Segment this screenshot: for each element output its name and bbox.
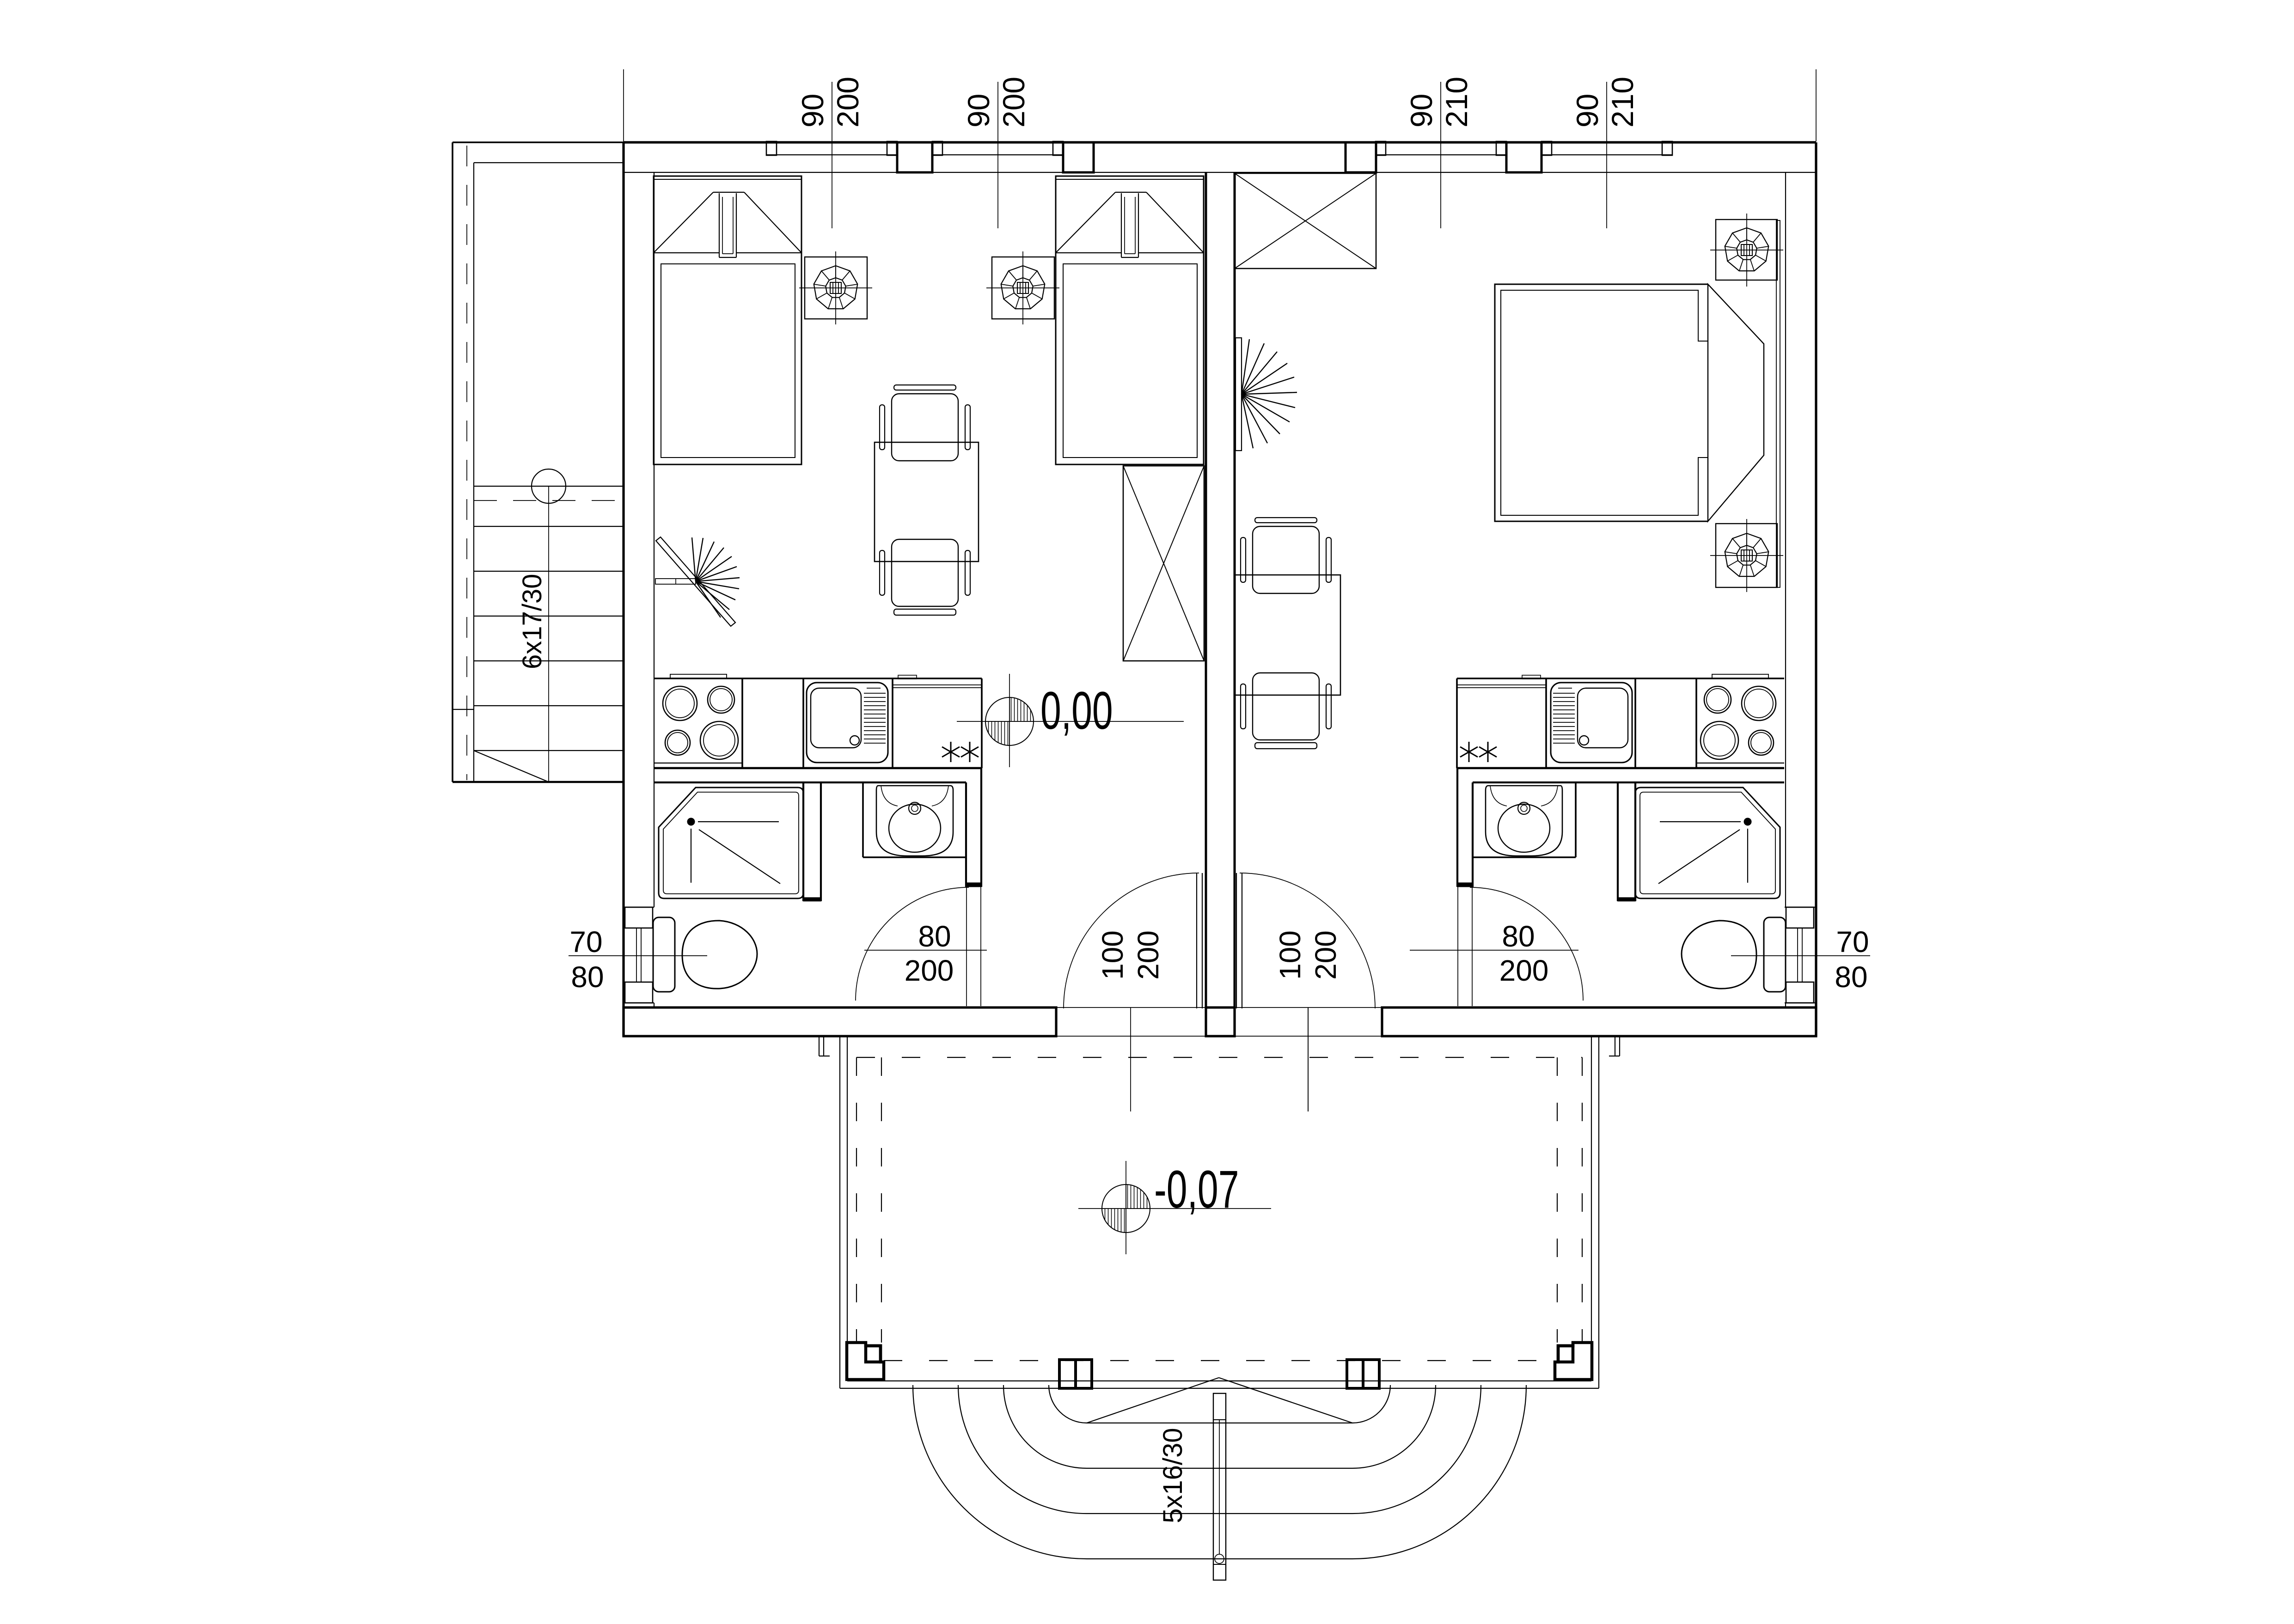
svg-text:200: 200	[1132, 930, 1165, 980]
svg-text:100: 100	[1096, 930, 1129, 980]
svg-text:200: 200	[1309, 930, 1342, 980]
svg-text:90: 90	[961, 94, 996, 128]
svg-text:90: 90	[1404, 94, 1438, 128]
svg-text:-0,07: -0,07	[1154, 1160, 1239, 1220]
svg-text:6x17/30: 6x17/30	[517, 574, 547, 669]
svg-text:80: 80	[1502, 920, 1535, 953]
svg-text:210: 210	[1439, 77, 1474, 128]
svg-text:90: 90	[1570, 94, 1604, 128]
svg-text:5x16/30: 5x16/30	[1158, 1428, 1188, 1523]
svg-text:90: 90	[795, 94, 830, 128]
svg-text:70: 70	[569, 925, 602, 959]
svg-text:210: 210	[1605, 77, 1639, 128]
svg-text:200: 200	[997, 77, 1031, 128]
svg-text:200: 200	[1499, 954, 1549, 987]
svg-text:200: 200	[831, 77, 865, 128]
svg-text:200: 200	[905, 954, 954, 987]
svg-text:80: 80	[571, 960, 604, 994]
svg-text:100: 100	[1273, 930, 1307, 980]
svg-text:80: 80	[1835, 960, 1867, 994]
svg-text:0,00: 0,00	[1040, 681, 1113, 741]
svg-text:70: 70	[1836, 925, 1869, 959]
svg-text:80: 80	[918, 920, 951, 953]
